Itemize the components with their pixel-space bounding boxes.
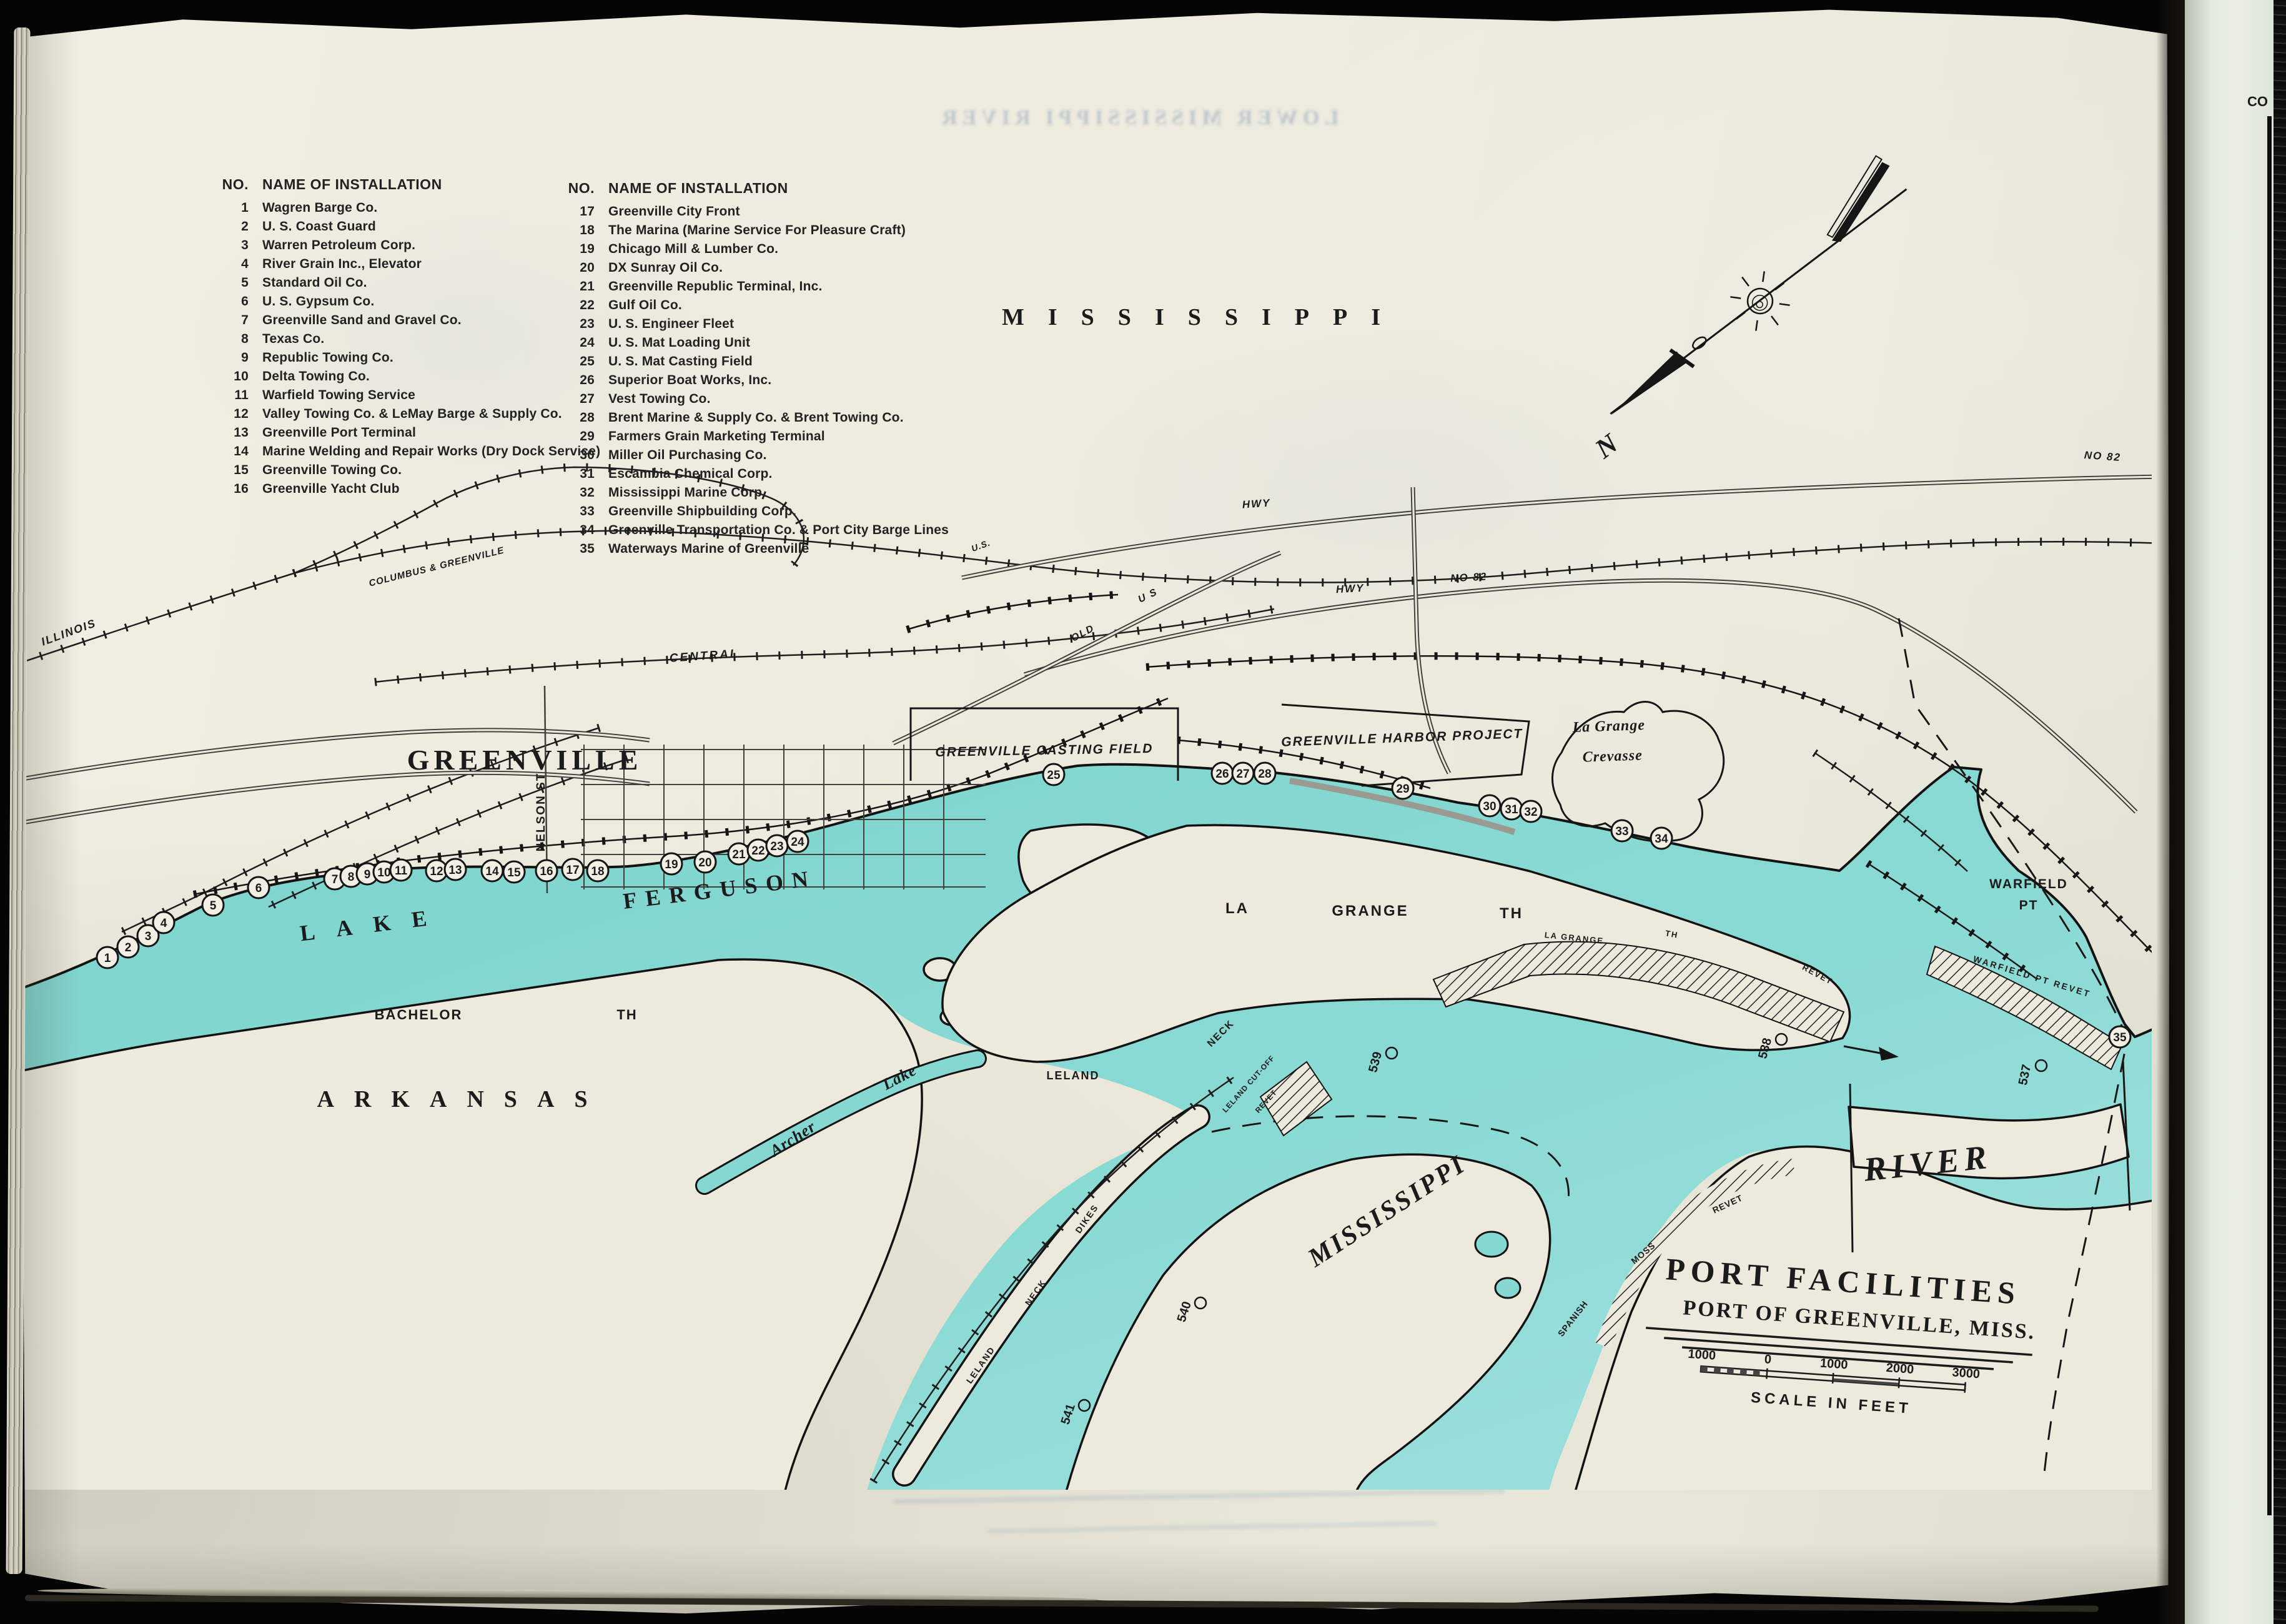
photo-background: LOWER MISSISSIPPI RIVER MAP NO. 25 — [0, 0, 2286, 1624]
book-page: LOWER MISSISSIPPI RIVER MAP NO. 25 — [0, 0, 2286, 1624]
adjacent-page-map-content — [2274, 0, 2286, 1624]
page-shadow-bottom — [0, 0, 2286, 1624]
adjacent-page — [2185, 0, 2274, 1624]
book-gutter — [2156, 0, 2186, 1624]
adjacent-page-text: CO — [2247, 94, 2268, 110]
adjacent-page-frame — [2267, 116, 2272, 1515]
